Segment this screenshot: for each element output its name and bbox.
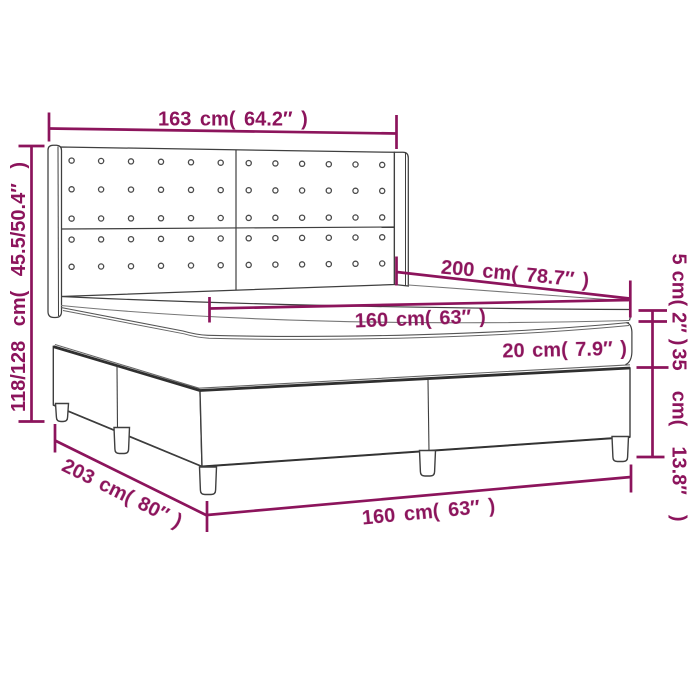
svg-text:20 cm( 7.9″ ): 20 cm( 7.9″ ) — [502, 338, 627, 363]
svg-text:5 cm( 2″ ): 5 cm( 2″ ) — [668, 254, 690, 346]
svg-text:163 cm( 64.2″ ): 163 cm( 64.2″ ) — [158, 109, 308, 131]
svg-text:160 cm( 63″ ): 160 cm( 63″ ) — [354, 306, 486, 333]
svg-text:35 cm( 13.8″ ): 35 cm( 13.8″ ) — [668, 348, 690, 521]
svg-text:118/128 cm( 45.5/50.4″ ): 118/128 cm( 45.5/50.4″ ) — [8, 162, 30, 412]
